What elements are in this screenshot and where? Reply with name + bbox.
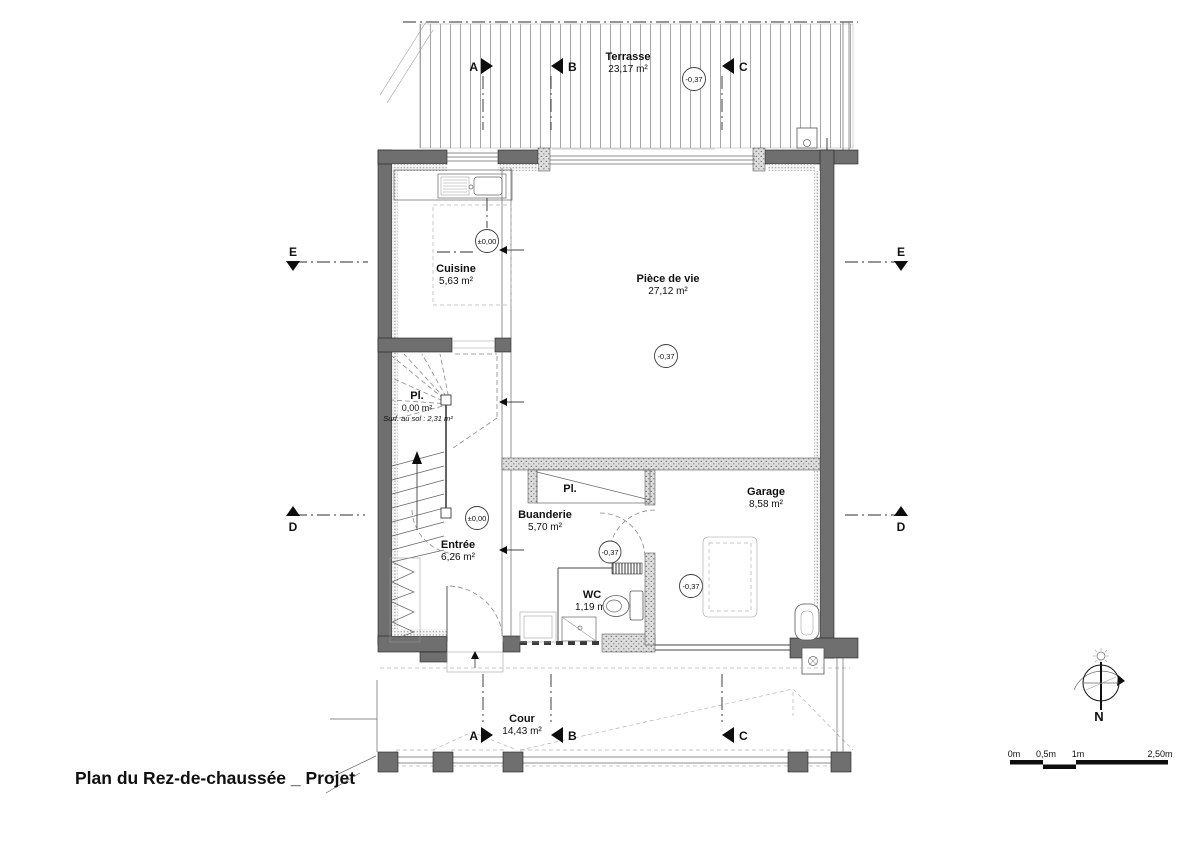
room-area-cour: 14,43 m²: [502, 726, 542, 737]
fence-post: [433, 752, 453, 772]
room-area-cuisine: 5,63 m²: [439, 276, 474, 287]
wall-living-south: [502, 458, 820, 470]
scale-bar: 0m 0,5m 1m 2,50m: [1008, 749, 1173, 769]
room-label-cour: Cour: [509, 713, 535, 725]
washbasin: [562, 617, 596, 641]
room-note-placard-stair: Surf. au sol : 2,31 m²: [383, 414, 453, 423]
drawing-title: Plan du Rez-de-chaussée _ Projet: [75, 768, 355, 788]
level-value-garage: -0,37: [682, 582, 699, 591]
terrace-decking: [420, 24, 853, 148]
ceiling-opening: [433, 205, 511, 305]
section-label-d-left: D: [289, 520, 298, 534]
section-arrow-d-left: [286, 506, 300, 516]
level-value-entree: ±0,00: [468, 514, 487, 523]
opening-arrow: [499, 246, 524, 554]
level-value-piece-de-vie: -0,37: [657, 352, 674, 361]
section-label-b-bottom: B: [568, 729, 577, 743]
water-heater: [795, 604, 819, 640]
section-arrow-c-bottom: [722, 727, 734, 743]
room-label-piece-de-vie: Pièce de vie: [637, 273, 700, 285]
section-label-c-top: C: [739, 60, 748, 74]
terrace-drain-fixture: [797, 128, 817, 148]
kitchen: Cuisine 5,63 m² ±0,00: [394, 170, 512, 305]
room-area-piece-de-vie: 27,12 m²: [648, 286, 688, 297]
interior-walls: [378, 168, 820, 645]
north-compass: N: [1074, 648, 1125, 724]
living-room: Pièce de vie 27,12 m² -0,37: [637, 273, 700, 368]
section-label-b-top: B: [568, 60, 577, 74]
level-value-terrasse: -0,37: [685, 75, 702, 84]
staircase: Pl. 0,00 m² Surf. au sol : 2,31 m²: [383, 354, 497, 562]
kitchen-counter: [394, 170, 512, 200]
section-arrow-b-bottom: [551, 727, 563, 743]
room-label-placard-hall: Pl.: [563, 483, 576, 495]
wall-bottom-left: [378, 636, 447, 652]
garage-storage: [703, 537, 757, 617]
faucet: [469, 185, 473, 189]
level-value-hall: -0,37: [601, 548, 618, 557]
scale-label-1: 1m: [1072, 749, 1085, 759]
section-label-c-bottom: C: [739, 729, 748, 743]
fence-post: [831, 752, 851, 772]
section-arrow-d-right: [894, 506, 908, 516]
room-area-entree: 6,26 m²: [441, 552, 476, 563]
entry-door-swing: [447, 586, 503, 642]
toilet: [603, 591, 643, 620]
neighbor-boundary-line: [380, 22, 426, 95]
vent-grille: [612, 563, 642, 574]
room-label-terrasse: Terrasse: [605, 51, 650, 63]
fence: [378, 750, 851, 772]
floor-plan-drawing: Terrasse 23,17 m² -0,37 A B C: [0, 0, 1200, 848]
newel-post: [441, 395, 451, 405]
fence-post: [788, 752, 808, 772]
newel-post: [441, 508, 451, 518]
level-value-cuisine: ±0,00: [478, 237, 497, 246]
wall-top-right: [765, 150, 858, 164]
garage-door: [655, 645, 790, 650]
room-area-terrasse: 23,17 m²: [608, 64, 648, 75]
laundry-wc: Buanderie 5,70 m² -0,37 WC 1,19 m²: [518, 509, 655, 645]
north-label: N: [1094, 709, 1103, 724]
sun-icon: [1093, 648, 1109, 664]
hall-closet: Pl.: [537, 470, 650, 503]
room-label-buanderie: Buanderie: [518, 509, 572, 521]
room-label-placard-stair: Pl.: [410, 390, 423, 402]
room-label-entree: Entrée: [441, 539, 475, 551]
scale-label-25: 2,50m: [1147, 749, 1172, 759]
room-label-cuisine: Cuisine: [436, 263, 476, 275]
section-arrow-e-left: [286, 261, 300, 271]
fence-post: [378, 752, 398, 772]
entrance-step: [447, 651, 503, 672]
pier: [753, 148, 765, 171]
washer: [520, 612, 556, 642]
section-label-e-right: E: [897, 245, 905, 259]
wall-right: [820, 150, 834, 658]
bay-window: [550, 149, 755, 164]
section-label-d-right: D: [897, 520, 906, 534]
room-label-garage: Garage: [747, 486, 785, 498]
room-area-garage: 8,58 m²: [749, 499, 784, 510]
section-arrow-e-right: [894, 261, 908, 271]
scale-label-0: 0m: [1008, 749, 1021, 759]
pier: [538, 148, 550, 171]
scale-label-05: 0,5m: [1036, 749, 1056, 759]
section-label-e-left: E: [289, 245, 297, 259]
fence-post: [503, 752, 523, 772]
room-label-wc: WC: [583, 589, 601, 601]
courtyard: Cour 14,43 m²: [326, 658, 853, 793]
stair-treads: [392, 452, 444, 562]
floor-plan-page: Terrasse 23,17 m² -0,37 A B C: [0, 0, 1200, 848]
exterior-walls: [378, 148, 858, 672]
room-area-buanderie: 5,70 m²: [528, 522, 563, 533]
sun-path-arc: [1074, 671, 1121, 690]
entry: Entrée 6,26 m² ±0,00: [390, 507, 503, 643]
section-label-a-top: A: [469, 60, 478, 74]
kitchen-window: [447, 153, 498, 161]
section-label-a-bottom: A: [469, 729, 478, 743]
wall-top-left: [378, 150, 447, 164]
section-arrow-a-bottom: [481, 727, 493, 743]
room-area-placard-stair: 0,00 m²: [402, 403, 433, 413]
